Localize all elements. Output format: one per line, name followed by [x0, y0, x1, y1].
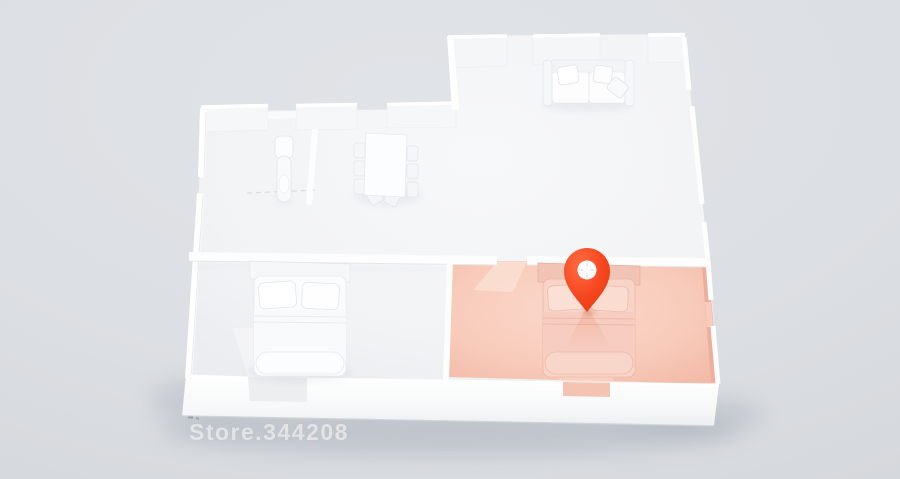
- highlighted-doorway: [563, 382, 610, 397]
- floorplan-render: Store.344208: [0, 0, 900, 479]
- bed: [247, 261, 351, 381]
- sofa: [542, 60, 634, 111]
- toilet: [274, 136, 294, 204]
- floorplan-canvas: [0, 0, 900, 479]
- north-wall-left-section: [201, 102, 457, 132]
